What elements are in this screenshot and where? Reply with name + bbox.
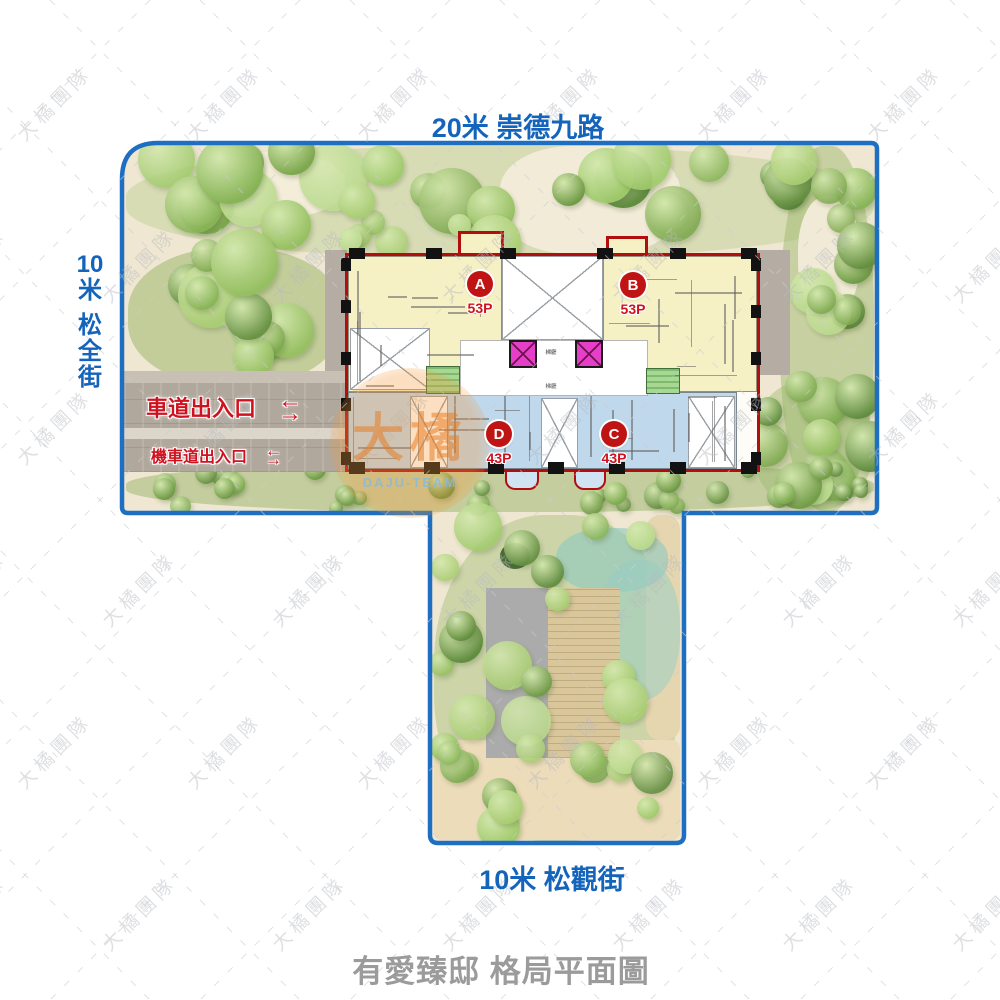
wall-line	[495, 410, 520, 412]
unit-badge-a: A 53P	[467, 271, 493, 316]
wall-line	[641, 279, 677, 281]
column	[548, 462, 564, 474]
tree	[339, 183, 375, 219]
road-label-left-line: 10	[77, 252, 104, 278]
column	[341, 300, 351, 313]
elevator-left	[509, 340, 537, 368]
tree	[773, 482, 795, 504]
svg-text:大橘團隊: 大橘團隊	[948, 548, 1000, 631]
tree	[185, 276, 219, 310]
wall-line	[412, 297, 438, 299]
tree	[807, 285, 836, 314]
tree	[803, 419, 840, 456]
moto-entrance-label: 機車道出入口 ← →	[151, 443, 282, 467]
car-entrance-label: 車道出入口 ← →	[146, 391, 302, 423]
svg-text:大橘團隊: 大橘團隊	[0, 872, 11, 955]
svg-text:大橘團隊: 大橘團隊	[0, 224, 11, 307]
entrance-canopy-right	[574, 470, 606, 490]
void-lower-left	[410, 396, 448, 468]
tree	[428, 472, 455, 499]
svg-text:大橘團隊: 大橘團隊	[863, 710, 946, 793]
unit-badge-area: 43P	[487, 450, 512, 466]
svg-text:大橘團隊: 大橘團隊	[353, 710, 436, 793]
wall-line	[714, 396, 716, 462]
svg-text:大橘團隊: 大橘團隊	[778, 872, 861, 955]
tree	[570, 741, 606, 777]
tree	[835, 484, 852, 501]
wall-line	[724, 406, 726, 461]
column	[670, 462, 686, 474]
tree	[474, 480, 490, 496]
tree	[521, 666, 552, 697]
column	[426, 248, 442, 259]
wall-line	[658, 299, 660, 343]
unit-badge-letter: A	[467, 271, 493, 297]
wall-line	[734, 276, 736, 319]
wall-line	[675, 375, 738, 377]
wall-line	[359, 458, 396, 460]
road-label-left-line: 街	[78, 365, 102, 391]
tree	[488, 790, 522, 824]
column	[341, 398, 351, 411]
wall-line	[529, 396, 531, 461]
wall-line	[609, 323, 650, 325]
tree	[631, 752, 673, 794]
svg-text:大橘團隊: 大橘團隊	[98, 548, 181, 631]
void-left-wing	[350, 328, 430, 390]
unit-badge-c: C 43P	[601, 421, 627, 466]
wall-line	[590, 396, 592, 456]
wall-line	[418, 404, 420, 461]
wall-line	[388, 296, 407, 298]
tree	[854, 484, 868, 498]
wall-line	[529, 432, 531, 450]
site-plan-canvas: 大橘團隊大橘團隊大橘團隊大橘團隊大橘團隊大橘團隊大橘團隊大橘團隊大橘團隊大橘團隊…	[0, 0, 1000, 1000]
unit-badge-d: D 43P	[486, 421, 512, 466]
tree	[771, 138, 818, 185]
wall-line	[626, 325, 670, 327]
svg-text:大橘團隊: 大橘團隊	[693, 710, 776, 793]
unit-badge-letter: C	[601, 421, 627, 447]
tree	[531, 555, 564, 588]
svg-text:大橘團隊: 大橘團隊	[183, 710, 266, 793]
svg-text:大橘團隊: 大橘團隊	[13, 62, 96, 145]
tree	[339, 489, 356, 506]
tree	[689, 143, 728, 182]
column	[349, 248, 365, 259]
tree	[603, 678, 648, 723]
void-center-top	[502, 256, 603, 340]
wall-line	[358, 447, 411, 449]
unit-badge-area: 53P	[621, 301, 646, 317]
tree	[454, 503, 502, 551]
tree	[516, 734, 545, 763]
wall-line	[359, 312, 361, 381]
entrance-canopy-left	[505, 470, 539, 490]
column	[500, 248, 516, 259]
svg-text:大橘團隊: 大橘團隊	[863, 62, 946, 145]
stairs-right	[646, 368, 680, 394]
lobby-label: 梯廳	[546, 381, 557, 389]
wall-line	[724, 304, 726, 365]
column	[751, 258, 761, 271]
lobby-label: 梯廳	[546, 347, 557, 355]
svg-text:大橘團隊: 大橘團隊	[948, 224, 1000, 307]
wall-line	[411, 306, 465, 308]
tree	[837, 222, 884, 269]
column	[751, 398, 761, 411]
unit-badge-letter: B	[620, 272, 646, 298]
tree	[706, 481, 729, 504]
tree	[196, 137, 263, 204]
wall-line	[673, 409, 675, 452]
wall-line	[454, 396, 456, 453]
arrow-right-icon: →	[278, 407, 302, 420]
svg-text:大橘團隊: 大橘團隊	[183, 62, 266, 145]
tree	[835, 374, 880, 419]
driveway-lane-divider	[124, 428, 347, 439]
column	[751, 452, 761, 465]
column	[751, 352, 761, 365]
wall-line	[380, 345, 382, 366]
tree	[833, 297, 861, 325]
wall-line	[427, 354, 473, 356]
column	[341, 258, 351, 271]
car-entrance-text: 車道出入口	[146, 391, 256, 423]
tree	[449, 694, 495, 740]
wall-line	[691, 280, 693, 347]
tree	[612, 131, 671, 190]
unit-badge-letter: D	[486, 421, 512, 447]
wall-line	[677, 366, 696, 368]
moto-entrance-arrows-icon: ← →	[265, 446, 282, 464]
svg-text:大橘團隊: 大橘團隊	[778, 548, 861, 631]
svg-text:大橘團隊: 大橘團隊	[353, 62, 436, 145]
column	[670, 248, 686, 259]
road-label-bottom: 10米 松觀街	[479, 858, 625, 897]
svg-text:大橘團隊: 大橘團隊	[948, 872, 1000, 955]
tree	[437, 741, 461, 765]
tree	[170, 496, 191, 517]
svg-text:大橘團隊: 大橘團隊	[693, 62, 776, 145]
tree	[580, 491, 603, 514]
tree	[268, 129, 315, 176]
tree	[211, 229, 278, 296]
wall-line	[675, 292, 741, 294]
stairs-left	[426, 366, 460, 394]
plan-caption: 有愛臻邸 格局平面圖	[352, 946, 650, 991]
svg-text:大橘團隊: 大橘團隊	[0, 548, 11, 631]
svg-text:大橘團隊: 大橘團隊	[13, 710, 96, 793]
column	[341, 452, 351, 465]
moto-entrance-text: 機車道出入口	[151, 443, 247, 467]
tree	[362, 145, 403, 186]
driveway-curb	[124, 371, 347, 383]
unit-badge-b: B 53P	[620, 272, 646, 317]
road-label-top: 20米 崇德九路	[432, 106, 605, 145]
column	[349, 462, 365, 474]
wall-line	[631, 400, 633, 461]
wall-line	[688, 413, 690, 442]
unit-badge-area: 53P	[468, 300, 493, 316]
svg-text:大橘團隊: 大橘團隊	[13, 386, 96, 469]
wall-line	[366, 385, 394, 387]
svg-text:大橘團隊: 大橘團隊	[268, 872, 351, 955]
wall-line	[688, 397, 717, 399]
building-side-pad	[757, 250, 790, 375]
tree	[645, 186, 701, 242]
site-area	[0, 0, 1000, 1000]
elevator-right	[575, 340, 603, 368]
road-label-left-line: 松	[78, 313, 102, 339]
tree	[785, 371, 817, 403]
wall-line	[454, 418, 490, 420]
tree	[545, 587, 570, 612]
road-label-left-line: 米	[78, 278, 102, 304]
svg-text:大橘團隊: 大橘團隊	[98, 872, 181, 955]
wall-line	[353, 397, 355, 462]
column	[597, 248, 613, 259]
svg-text:大橘團隊: 大橘團隊	[268, 548, 351, 631]
road-label-left-line: 全	[78, 339, 102, 365]
column	[751, 305, 761, 318]
column	[341, 352, 351, 365]
void-lower-center	[541, 398, 578, 468]
wall-line	[732, 320, 734, 372]
unit-badge-area: 43P	[602, 450, 627, 466]
arrow-right-icon: →	[265, 455, 282, 464]
road-label-left: 10 米 松 全 街	[61, 252, 119, 391]
tree	[809, 457, 833, 481]
column	[424, 462, 440, 474]
tree	[845, 421, 896, 472]
car-entrance-arrows-icon: ← →	[278, 394, 302, 420]
